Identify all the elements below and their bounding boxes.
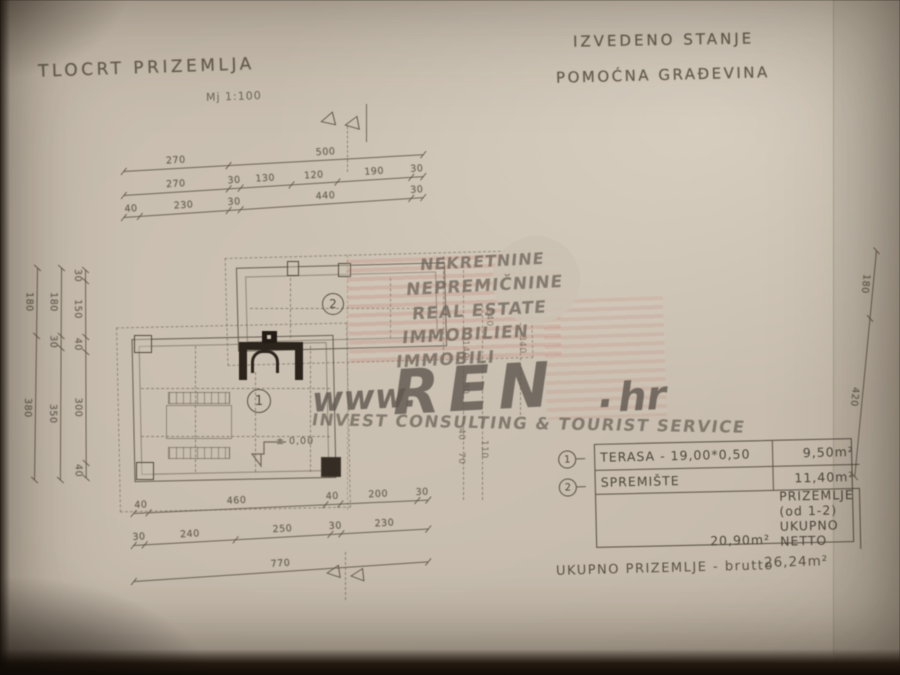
grid-line <box>141 388 330 389</box>
table-cell-label: PRIZEMLJE (od 1-2) <box>774 489 860 517</box>
dim-chain-bottom-2: 3024025030230 <box>133 516 428 548</box>
section-marker-icon: ◁ <box>342 113 360 134</box>
dim-chain-left-3: 301504030040 <box>72 270 89 478</box>
bench-table <box>166 405 232 439</box>
section-marker-icon: ◁ <box>318 109 337 131</box>
grid-line <box>195 346 196 472</box>
inner-dim-label: 110 <box>479 440 489 459</box>
table-cell-value: 20,90m² <box>596 491 775 555</box>
wall-post-top-1 <box>287 261 299 276</box>
table-row-1-number-label: 1 <box>564 454 571 465</box>
room-2-number: 2 <box>322 293 344 315</box>
table-row-2-number-label: 2 <box>565 482 572 493</box>
summary-label: UKUPNO PRIZEMLJE - brutto <box>556 558 774 579</box>
page-title: TLOCRT PRIZEMLJA <box>38 54 255 82</box>
inner-dim-label: 70 <box>456 452 466 464</box>
sink-box <box>262 331 277 343</box>
leader-dash <box>576 458 585 459</box>
terrace-post-bottom-right <box>321 457 341 477</box>
fireplace-arch <box>251 350 279 373</box>
table-row-2-number: 2 <box>559 478 577 496</box>
area-table: 1 2 TERASA - 19,00*0,50 9,50m² SPREMIŠTE… <box>594 438 854 548</box>
terrace-post-bottom-left <box>136 462 154 480</box>
section-line-top <box>366 104 367 142</box>
terrace-post-top-left <box>134 335 152 353</box>
dim-chain-left-1: 180380 <box>21 268 40 480</box>
status-line-2: POMOĆNA GRAĐEVINA <box>556 63 770 87</box>
watermark-tagline: INVEST CONSULTING & TOURIST SERVICE <box>311 410 748 437</box>
status-line-1: IZVEDENO STANJE <box>573 29 754 50</box>
table-row-1-number: 1 <box>558 450 576 468</box>
watermark-brand-dot: . <box>597 368 616 418</box>
area-table-grid: TERASA - 19,00*0,50 9,50m² SPREMIŠTE 11,… <box>594 438 854 548</box>
watermark-brand-tld: hr <box>617 373 668 421</box>
summary-value: 26,24m² <box>764 553 829 571</box>
table-cell-label: TERASA - 19,00*0,50 <box>595 441 774 471</box>
table-cell-label: UKUPNO NETTO <box>775 515 861 551</box>
scale-label: Mj 1:100 <box>206 89 262 104</box>
photographed-floor-plan: TLOCRT PRIZEMLJA Mj 1:100 IZVEDENO STANJ… <box>0 0 900 675</box>
bench-strip-top <box>168 392 230 404</box>
table-cell-value: 9,50m² <box>773 439 859 467</box>
dim-chain-left-2: 18030350 <box>47 268 64 480</box>
fireplace <box>239 342 303 380</box>
leader-dash <box>577 486 586 487</box>
drawing-sheet: TLOCRT PRIZEMLJA Mj 1:100 IZVEDENO STANJ… <box>0 0 900 675</box>
level-marker: ± 0,00 <box>276 436 314 447</box>
grid-line <box>310 346 311 472</box>
room-1-number: 1 <box>247 389 271 413</box>
room-2-number-label: 2 <box>329 297 337 311</box>
room-1-number-label: 1 <box>255 394 263 409</box>
dim-chain-bottom-3: 770 <box>133 548 428 584</box>
paper-edge-line <box>833 0 834 655</box>
bench-strip-bottom <box>168 447 230 459</box>
